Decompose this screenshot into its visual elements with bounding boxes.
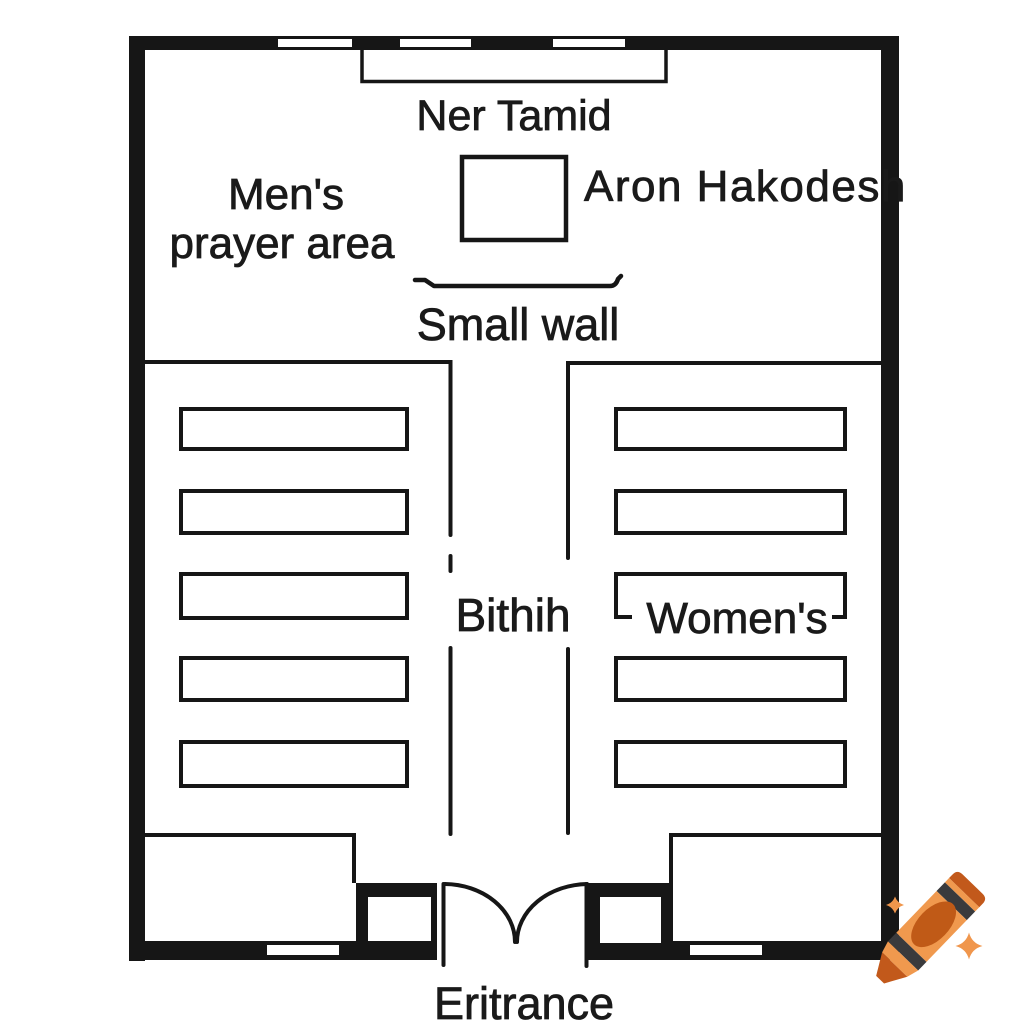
svg-text:Men's: Men's	[228, 170, 344, 219]
svg-text:prayer area: prayer area	[169, 219, 395, 268]
svg-text:Eritrance: Eritrance	[434, 978, 614, 1024]
svg-text:Aron Hakodesh: Aron Hakodesh	[584, 162, 907, 211]
svg-text:Bithih: Bithih	[455, 589, 570, 641]
svg-text:Women's: Women's	[646, 594, 827, 643]
svg-text:Small wall: Small wall	[417, 299, 620, 350]
svg-text:Ner Tamid: Ner Tamid	[416, 92, 611, 140]
